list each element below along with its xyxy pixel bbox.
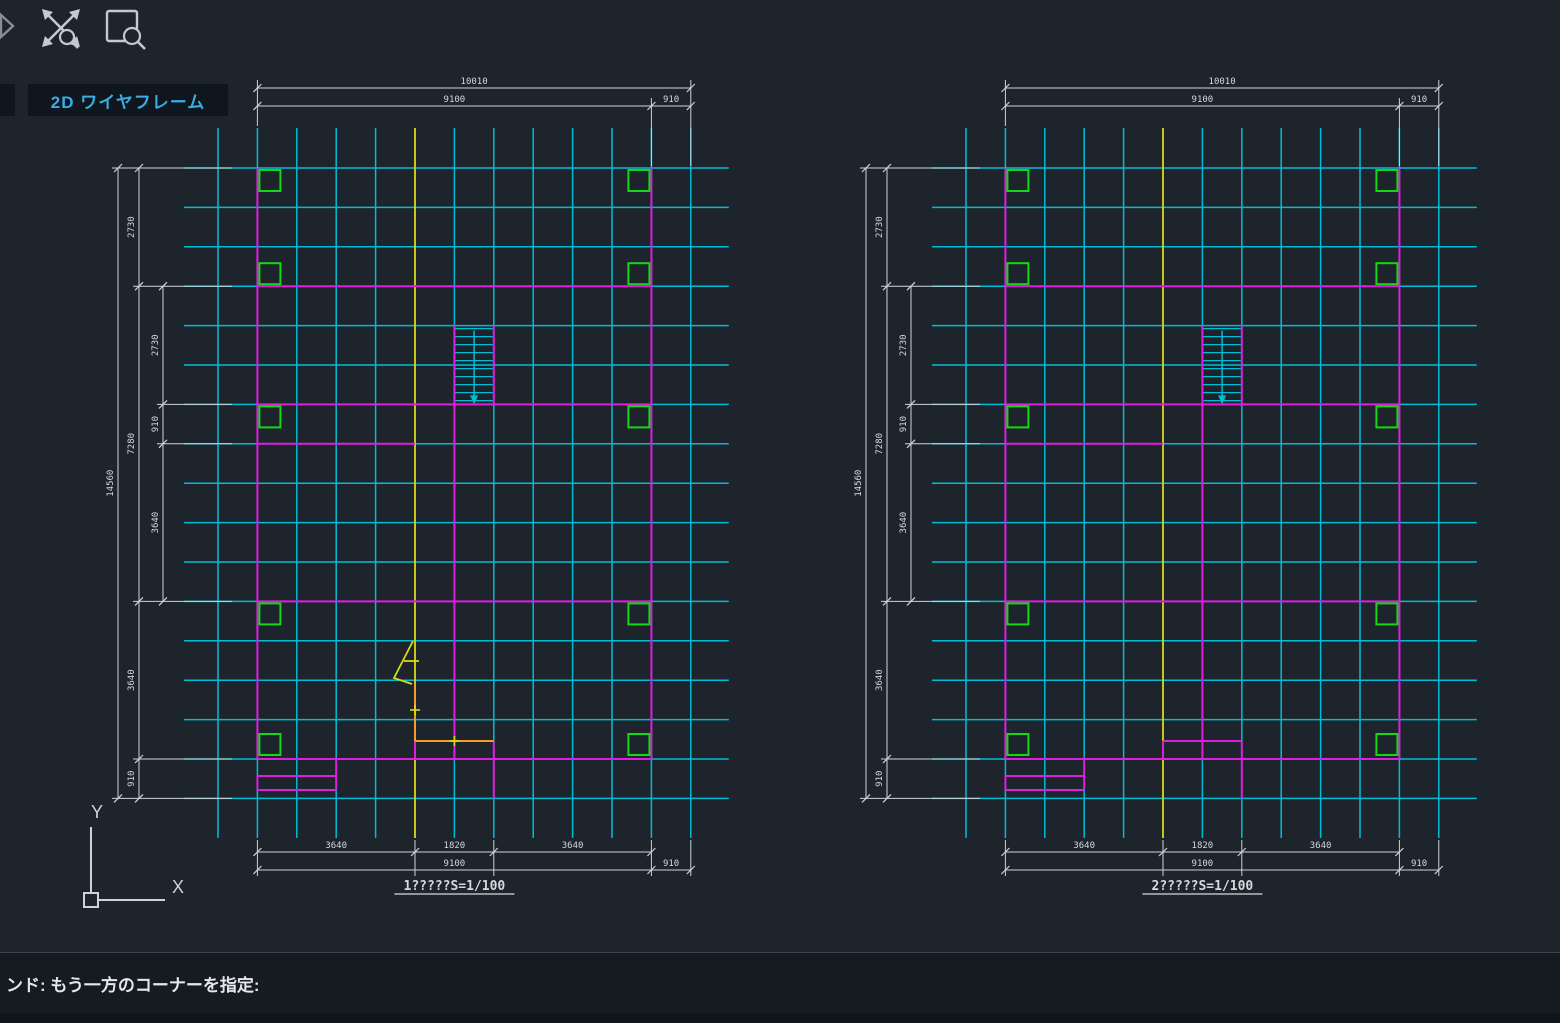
- svg-text:1820: 1820: [1192, 841, 1214, 851]
- svg-text:7280: 7280: [875, 433, 885, 455]
- plan-title: 2?????S=1/100: [1142, 879, 1262, 894]
- command-prompt-text: ンド: もう一方のコーナーを指定:: [0, 971, 260, 996]
- zoom-window-icon[interactable]: [104, 8, 150, 52]
- floor-plan-1: 1001091009103640182036409100910145602730…: [106, 77, 729, 894]
- ucs-y-label: Y: [91, 802, 103, 822]
- viewport-visual-style-control[interactable]: 2D ワイヤフレーム: [28, 84, 228, 116]
- column-marker: [1376, 170, 1397, 191]
- column-marker: [259, 406, 280, 427]
- svg-text:9100: 9100: [1192, 859, 1214, 869]
- ucs-icon: YX: [84, 802, 184, 907]
- svg-text:9100: 9100: [1192, 95, 1214, 105]
- rubber-band-polyline: [394, 641, 494, 746]
- svg-text:3640: 3640: [899, 512, 909, 534]
- column-marker: [1007, 734, 1028, 755]
- column-marker: [1007, 263, 1028, 284]
- column-marker: [1007, 170, 1028, 191]
- ucs-x-label: X: [172, 877, 184, 897]
- application-window: 1001091009103640182036409100910145602730…: [0, 0, 1560, 1023]
- column-marker: [1376, 263, 1397, 284]
- column-marker: [259, 170, 280, 191]
- column-marker: [1376, 406, 1397, 427]
- svg-text:14560: 14560: [106, 470, 116, 497]
- column-marker: [628, 406, 649, 427]
- flyout-chevron-icon[interactable]: [0, 12, 16, 42]
- viewport-controls-stub[interactable]: [0, 84, 15, 116]
- svg-text:14560: 14560: [854, 470, 864, 497]
- plan-title: 1?????S=1/100: [394, 879, 514, 894]
- status-area: [0, 1014, 1560, 1023]
- svg-text:2730: 2730: [875, 216, 885, 238]
- column-marker: [259, 263, 280, 284]
- column-marker: [259, 734, 280, 755]
- stairs: [1203, 329, 1240, 405]
- column-marker: [1007, 603, 1028, 624]
- svg-text:910: 910: [663, 95, 679, 105]
- drawing-canvas[interactable]: 1001091009103640182036409100910145602730…: [0, 0, 1560, 1023]
- svg-text:3640: 3640: [562, 841, 584, 851]
- svg-text:10010: 10010: [1209, 77, 1236, 87]
- svg-text:3640: 3640: [127, 669, 137, 691]
- module-grid: [932, 128, 1477, 838]
- svg-text:2730: 2730: [127, 216, 137, 238]
- svg-text:9100: 9100: [444, 95, 466, 105]
- svg-text:7280: 7280: [127, 433, 137, 455]
- column-marker: [1007, 406, 1028, 427]
- svg-text:3640: 3640: [151, 512, 161, 534]
- svg-text:910: 910: [127, 771, 137, 787]
- svg-text:9100: 9100: [444, 859, 466, 869]
- column-marker: [628, 603, 649, 624]
- svg-text:2?????S=1/100: 2?????S=1/100: [1152, 879, 1254, 894]
- module-grid: [184, 128, 729, 838]
- svg-text:910: 910: [899, 416, 909, 432]
- dimensions: 1001091009103640182036409100910145602730…: [854, 77, 1443, 876]
- floor-plan-2: 1001091009103640182036409100910145602730…: [854, 77, 1477, 894]
- svg-text:10010: 10010: [461, 77, 488, 87]
- svg-text:910: 910: [1411, 859, 1427, 869]
- column-marker: [628, 170, 649, 191]
- svg-text:910: 910: [875, 771, 885, 787]
- column-marker: [628, 734, 649, 755]
- svg-text:1?????S=1/100: 1?????S=1/100: [404, 879, 506, 894]
- svg-text:910: 910: [151, 416, 161, 432]
- svg-text:3640: 3640: [325, 841, 347, 851]
- column-marker: [628, 263, 649, 284]
- svg-text:910: 910: [663, 859, 679, 869]
- zoom-extents-icon[interactable]: [38, 5, 88, 53]
- column-marker: [259, 603, 280, 624]
- svg-text:3640: 3640: [1073, 841, 1095, 851]
- column-marker: [1376, 603, 1397, 624]
- column-marker: [1376, 734, 1397, 755]
- command-line-bar[interactable]: ンド: もう一方のコーナーを指定:: [0, 952, 1560, 1015]
- svg-text:3640: 3640: [1310, 841, 1332, 851]
- svg-text:3640: 3640: [875, 669, 885, 691]
- svg-text:2730: 2730: [899, 334, 909, 356]
- svg-text:910: 910: [1411, 95, 1427, 105]
- stairs: [455, 329, 492, 405]
- svg-text:1820: 1820: [444, 841, 466, 851]
- viewport-visual-style-label[interactable]: 2D ワイヤフレーム: [51, 88, 205, 113]
- svg-text:2730: 2730: [151, 334, 161, 356]
- dimensions: 1001091009103640182036409100910145602730…: [106, 77, 695, 876]
